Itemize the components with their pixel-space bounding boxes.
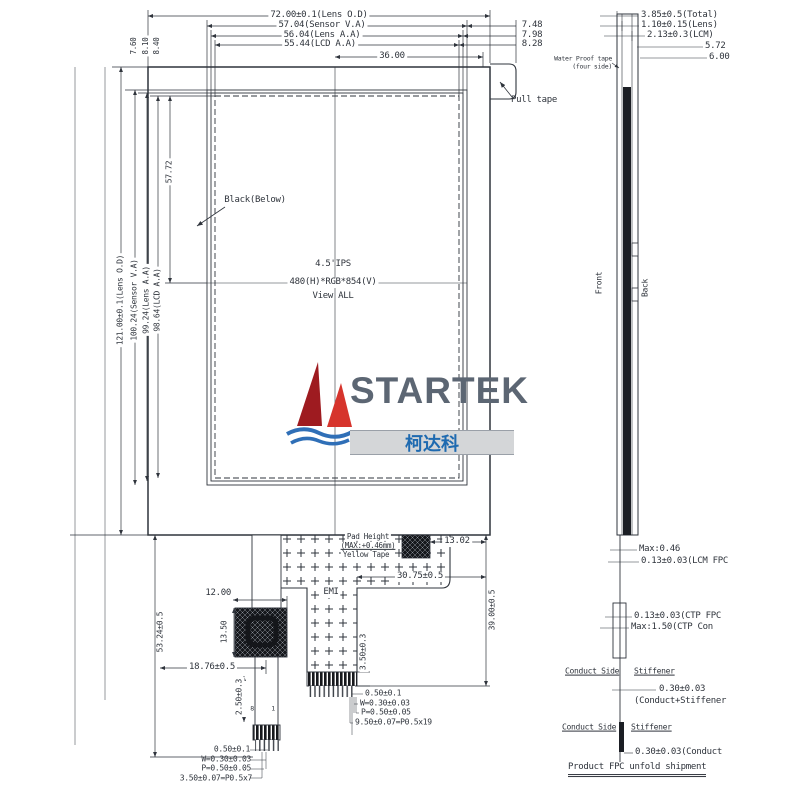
fpc-contact-pins — [309, 686, 355, 697]
dim-lens-od-height: 121.00±0.1(Lens O.D) — [117, 253, 126, 347]
ctp-connector — [253, 725, 280, 740]
dim-3075: 30.75±0.5 — [395, 572, 445, 582]
display-size-label: 4.5'IPS — [315, 260, 351, 270]
dim-conduct: 0.30±0.03(Conduct — [635, 748, 722, 758]
ctp-pin-dim-3: P=0.50±0.05 — [201, 765, 251, 774]
pull-tape-tab — [490, 64, 516, 99]
brand-wordmark: STARTEK — [350, 370, 516, 412]
dim-max046: Max:0.46 — [639, 545, 680, 555]
dim-5772: 57.72 — [166, 159, 175, 186]
side-view — [613, 14, 638, 762]
conduct-side-label-1: Conduct Side — [565, 668, 619, 677]
display-resolution-label: 480(H)*RGB*854(V) — [287, 278, 378, 288]
dim-ctp-fpc: 0.13±0.03(CTP FPC — [634, 612, 721, 622]
sail-small — [327, 383, 352, 427]
fpc-pin-dim-1: 0.50±0.1 — [365, 690, 401, 699]
fpc-pin-dim-4: 9.50±0.07=P0.5x19 — [355, 719, 432, 728]
lcd-mechanical-drawing: 72.00±0.1(Lens O.D) 57.04(Sensor V.A) 56… — [0, 0, 800, 800]
dim-810: 8.10 — [142, 36, 150, 57]
stiffener-label-2: Stiffener — [631, 724, 672, 733]
emi-label: EMI — [321, 588, 340, 598]
dim-lcd-aa-height: 98.64(LCD A.A) — [154, 266, 163, 333]
dim-lcm-fpc: 0.13±0.03(LCM FPC — [641, 557, 728, 567]
brand-chinese-text: 柯达科 — [405, 430, 459, 456]
side-lcd-glass — [623, 87, 631, 535]
dim-5324: 53.24±0.5 — [157, 610, 166, 655]
dim-840: 8.40 — [153, 36, 161, 57]
dim-sensor-va-height: 100.24(Sensor V.A) — [131, 257, 140, 342]
wave-top — [287, 429, 352, 437]
side-front-label: Front — [596, 272, 605, 295]
dim-1302: 13.02 — [442, 537, 472, 547]
dim-1876: 18.76±0.5 — [187, 663, 237, 673]
dim-350: 3.50±0.3 — [360, 632, 369, 672]
dim-36: 36.00 — [377, 52, 407, 62]
dim-250: 2.50±0.3 — [236, 677, 245, 717]
conduct-side-label-2: Conduct Side — [562, 724, 616, 733]
ctp-fpc — [235, 535, 287, 751]
dim-lens-aa-height: 99.24(Lens A.A) — [143, 264, 152, 336]
side-back-bump — [632, 243, 638, 256]
dim-lcm-thickness: 2.13±0.3(LCM) — [647, 31, 714, 41]
dim-572: 5.72 — [705, 42, 725, 52]
side-dimension-lines — [600, 11, 707, 753]
dim-3900: 39.00±0.5 — [489, 588, 498, 633]
logo-sailboat-icon — [287, 362, 352, 444]
brand-chinese-band: 柯达科 — [350, 430, 514, 455]
dim-lcd-aa-width: 55.44(LCD A.A) — [282, 40, 358, 50]
ctp-pin-dim-4: 3.50±0.07=P0.5x7 — [180, 775, 252, 784]
tape-note-line2: (four side) — [572, 63, 612, 70]
conduct-stiffener-note: (Conduct+Stiffener — [634, 697, 726, 707]
side-back-bump — [632, 288, 638, 301]
dim-ctp-connector: Max:1.50(CTP Con — [631, 623, 713, 633]
pin-number-1: 1 — [271, 705, 275, 712]
fpc-pin-dim-3: P=0.50±0.05 — [361, 709, 411, 718]
shipment-note: Product FPC unfold shipment — [568, 763, 706, 777]
black-below-label: Black(Below) — [224, 196, 285, 206]
wave-bottom — [291, 438, 349, 443]
sail-large — [297, 362, 322, 426]
dim-1350: 13.50 — [221, 619, 230, 646]
pin-number-8: 8 — [250, 705, 254, 712]
ctp-contact-pins — [255, 740, 279, 751]
dim-828: 8.28 — [522, 40, 542, 50]
side-stiffener-rect — [613, 603, 626, 658]
fpc-pad-square — [402, 535, 430, 558]
stiffener-label-1: Stiffener — [634, 668, 675, 677]
pull-tape-label: Pull tape — [511, 96, 557, 106]
dim-760: 7.60 — [130, 36, 138, 57]
ctp-pin-dim-1: 0.50±0.1 — [214, 746, 250, 755]
dim-1200: 12.00 — [205, 589, 231, 599]
fpc-connector — [307, 672, 357, 686]
dim-600: 6.00 — [709, 53, 729, 63]
ctp-tail — [255, 657, 278, 725]
pad-note-line1: Pad Height — [345, 533, 391, 541]
dim-conduct-stiffener: 0.30±0.03 — [659, 685, 705, 695]
ctp-component-square — [235, 608, 287, 657]
side-back-label: Back — [642, 279, 651, 297]
pad-note-line3: Yellow Tape — [341, 551, 391, 559]
side-fpc-fold-end — [619, 722, 624, 752]
display-view-label: View ALL — [313, 292, 354, 302]
pad-note-line2: (MAX:+0.46mm) — [339, 542, 398, 550]
